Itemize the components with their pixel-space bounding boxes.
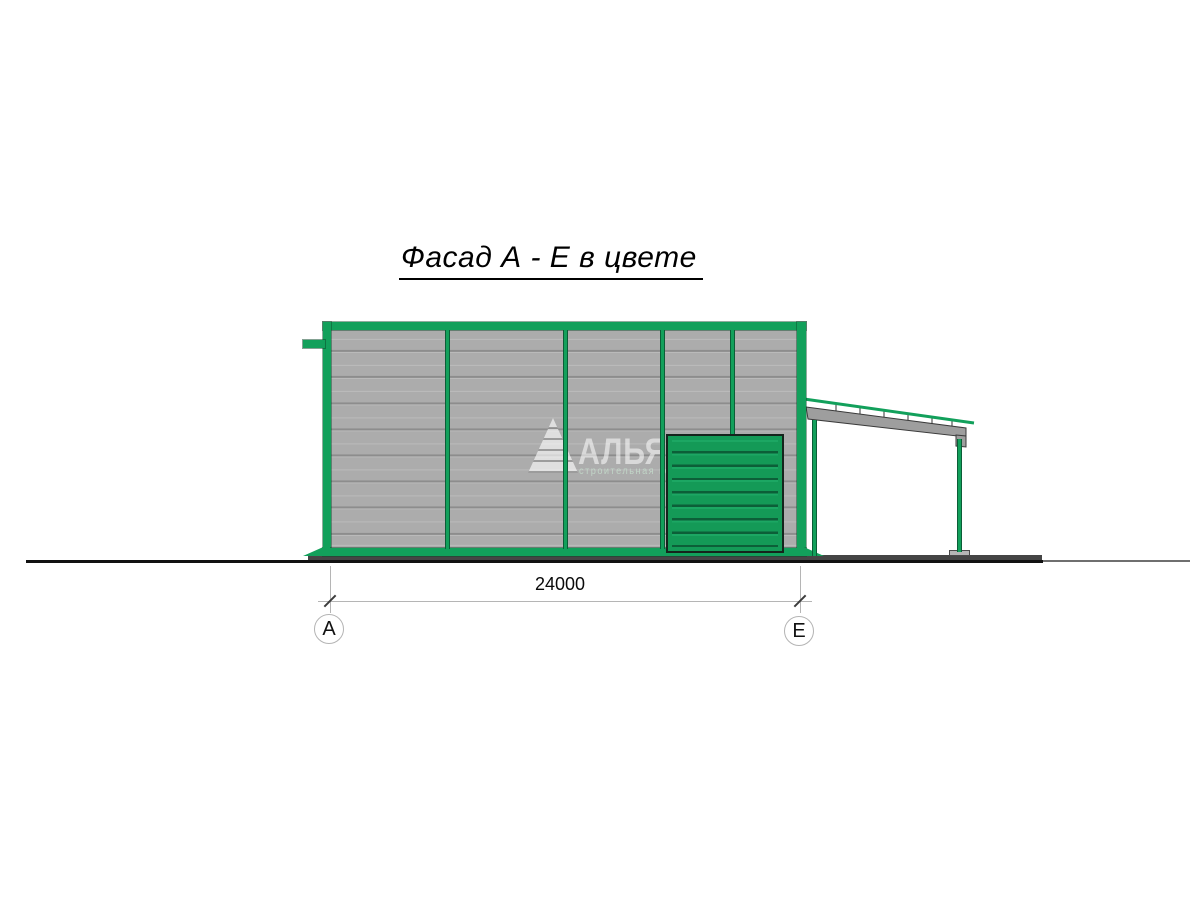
frame-top-beam	[323, 322, 806, 330]
drawing-title: Фасад А - Е в цвете	[399, 241, 703, 280]
ground-line	[26, 560, 1043, 563]
frame-right-column	[797, 322, 806, 552]
facade-mullion	[660, 330, 665, 549]
dimension-line	[318, 601, 812, 602]
axis-marker-e: Е	[784, 616, 814, 646]
canopy-post-near	[812, 420, 817, 556]
gate-slats	[672, 440, 778, 547]
frame-left-column	[323, 322, 331, 552]
sectional-gate	[666, 434, 784, 553]
extension-line-e	[800, 566, 801, 613]
ground-line-extension	[1043, 560, 1190, 562]
dimension-value: 24000	[460, 574, 660, 595]
axis-marker-a: А	[314, 614, 344, 644]
gate-frame	[668, 436, 782, 551]
facade-drawing-sheet: Фасад А - Е в цвете АЛЬЯНС строительная …	[0, 0, 1200, 900]
gutter-outlet	[303, 340, 325, 348]
extension-line-a	[330, 566, 331, 613]
canopy-post-far	[957, 439, 962, 552]
facade-mullion	[445, 330, 450, 549]
facade-mullion	[563, 330, 568, 549]
